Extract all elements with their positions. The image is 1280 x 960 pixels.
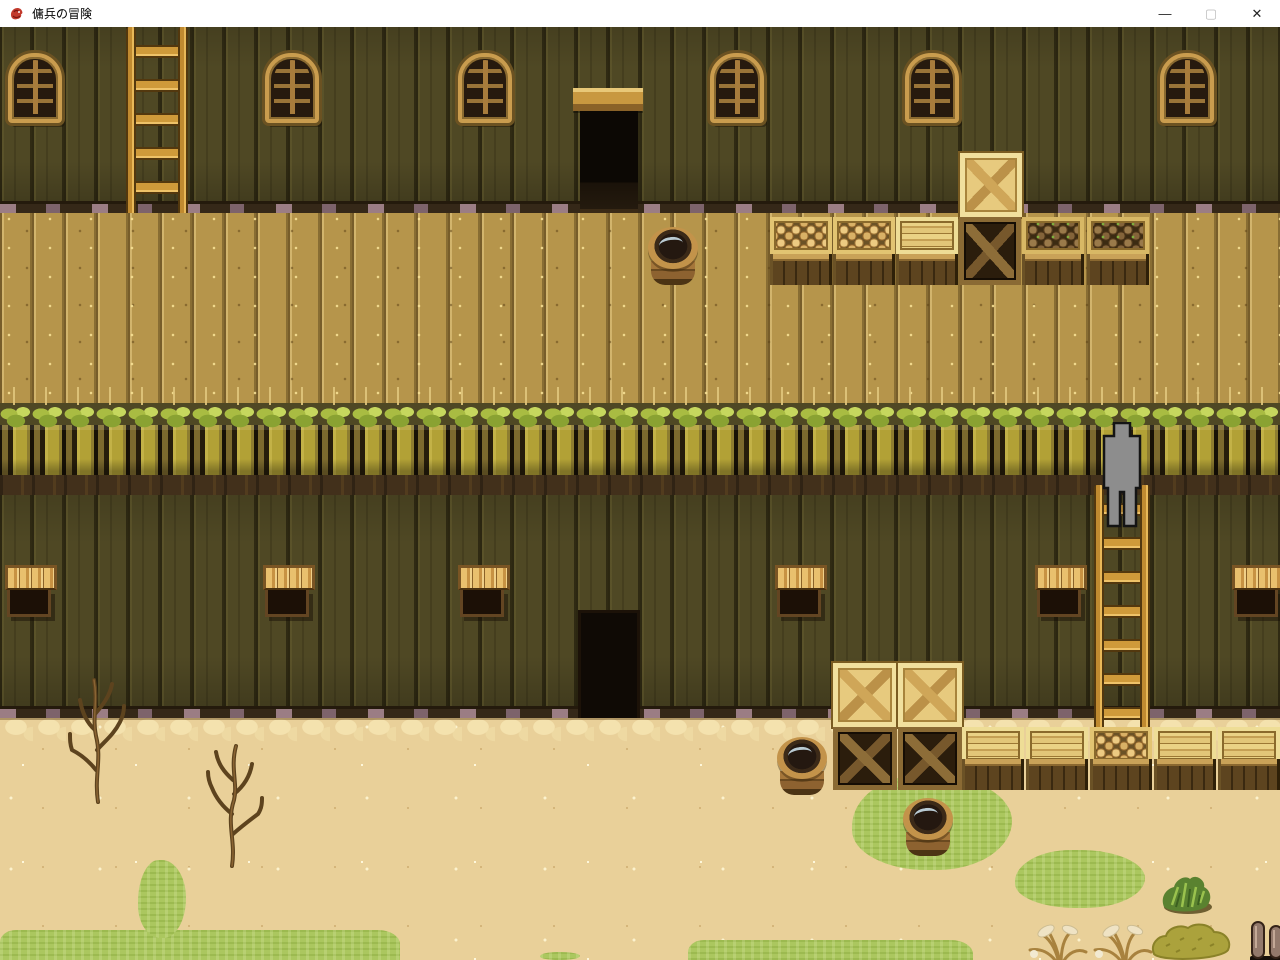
crate-bottom — [962, 759, 1024, 790]
barrel[interactable] — [777, 737, 827, 795]
crate-slatted[interactable] — [1026, 727, 1088, 790]
dragon-icon — [9, 6, 25, 22]
ladder-rail — [126, 27, 136, 217]
ladder-upper-left[interactable] — [126, 27, 188, 217]
grass-patch — [0, 930, 400, 960]
barrel-rim — [903, 798, 953, 840]
upper-doorway[interactable] — [580, 111, 638, 213]
minimize-button[interactable]: — — [1142, 0, 1188, 27]
arched-window — [458, 53, 512, 123]
wooden-posts — [1250, 920, 1280, 960]
upper-wall-base-trim — [0, 201, 1280, 213]
arched-window — [8, 53, 62, 123]
barrel[interactable] — [903, 798, 953, 856]
walkway-ledge — [0, 399, 1280, 499]
grass-patch — [138, 860, 186, 938]
crate-produce[interactable] — [1087, 217, 1149, 285]
window-opening — [460, 590, 504, 617]
crate-x-dark[interactable] — [898, 727, 962, 790]
crate-bottom — [1022, 254, 1084, 285]
crate-produce[interactable] — [1090, 727, 1152, 790]
shuttered-window — [1232, 565, 1280, 617]
crate-slatted[interactable] — [1218, 727, 1280, 790]
lower-wall — [0, 495, 1280, 718]
window-opening — [1037, 590, 1081, 617]
shuttered-window — [5, 565, 57, 617]
upper-wall — [0, 27, 1280, 213]
shuttered-window — [775, 565, 827, 617]
crate-top — [833, 217, 895, 254]
crate-x-dark[interactable] — [959, 217, 1021, 285]
close-button[interactable]: ✕ — [1234, 0, 1280, 27]
crate-bottom — [833, 254, 895, 285]
flower-grass-plant — [1026, 922, 1090, 960]
window-shutters — [1232, 565, 1280, 590]
player-character[interactable] — [1102, 422, 1142, 528]
crate-produce[interactable] — [833, 217, 895, 285]
window-opening — [7, 590, 51, 617]
crate-x-light[interactable] — [833, 663, 897, 727]
arched-window — [905, 53, 959, 123]
window-title: 傭兵の冒険 — [32, 5, 1142, 22]
crate-bottom — [770, 254, 832, 285]
window-opening — [265, 590, 309, 617]
crate-x-light[interactable] — [960, 153, 1022, 217]
titlebar[interactable]: 傭兵の冒険 — ▢ ✕ — [0, 0, 1280, 27]
dead-bush — [66, 672, 130, 804]
upper-door-lintel — [573, 88, 643, 111]
flower-grass-plant — [1091, 922, 1155, 960]
arched-window — [1160, 53, 1214, 123]
crate-bottom — [1087, 254, 1149, 285]
crate-x-light[interactable] — [898, 663, 962, 727]
arched-window — [710, 53, 764, 123]
crate-slatted[interactable] — [896, 217, 958, 285]
log-post-edge — [0, 425, 1280, 475]
crate-bottom — [1090, 759, 1152, 790]
crate-produce[interactable] — [1022, 217, 1084, 285]
arched-window — [265, 53, 319, 123]
crate-top — [1022, 217, 1084, 254]
crate-x-dark[interactable] — [833, 727, 897, 790]
lower-doorway[interactable] — [578, 610, 640, 724]
barrel[interactable] — [648, 227, 698, 285]
shuttered-window — [458, 565, 510, 617]
crate-slatted[interactable] — [962, 727, 1024, 790]
grass-patch — [1015, 850, 1145, 908]
crate-bottom — [1154, 759, 1216, 790]
window-shutters — [1035, 565, 1087, 590]
barrel-rim — [777, 737, 827, 779]
crate-produce[interactable] — [770, 217, 832, 285]
window-shutters — [775, 565, 827, 590]
crate-bottom — [1218, 759, 1280, 790]
grass-patch — [540, 952, 580, 960]
window-shutters — [458, 565, 510, 590]
lower-wall-base-trim — [0, 706, 1280, 718]
window-shutters — [5, 565, 57, 590]
barrel-rim — [648, 227, 698, 269]
ladder-rungs — [132, 27, 182, 217]
shuttered-window — [263, 565, 315, 617]
window-shutters — [263, 565, 315, 590]
window-opening — [1234, 590, 1278, 617]
crate-top — [770, 217, 832, 254]
game-viewport[interactable] — [0, 27, 1280, 960]
maximize-button[interactable]: ▢ — [1188, 0, 1234, 27]
crate-top — [896, 217, 958, 254]
crate-slatted[interactable] — [1154, 727, 1216, 790]
dead-bush — [196, 740, 268, 868]
app-window: 傭兵の冒険 — ▢ ✕ — [0, 0, 1280, 960]
window-opening — [777, 590, 821, 617]
crate-bottom — [1026, 759, 1088, 790]
grass-patch — [688, 940, 973, 960]
grass-tufts — [0, 399, 1280, 431]
green-bush — [1158, 875, 1216, 915]
ladder-rail — [178, 27, 188, 217]
crate-bottom — [896, 254, 958, 285]
crate-top — [1087, 217, 1149, 254]
yellow-bush — [1150, 918, 1234, 960]
shuttered-window — [1035, 565, 1087, 617]
